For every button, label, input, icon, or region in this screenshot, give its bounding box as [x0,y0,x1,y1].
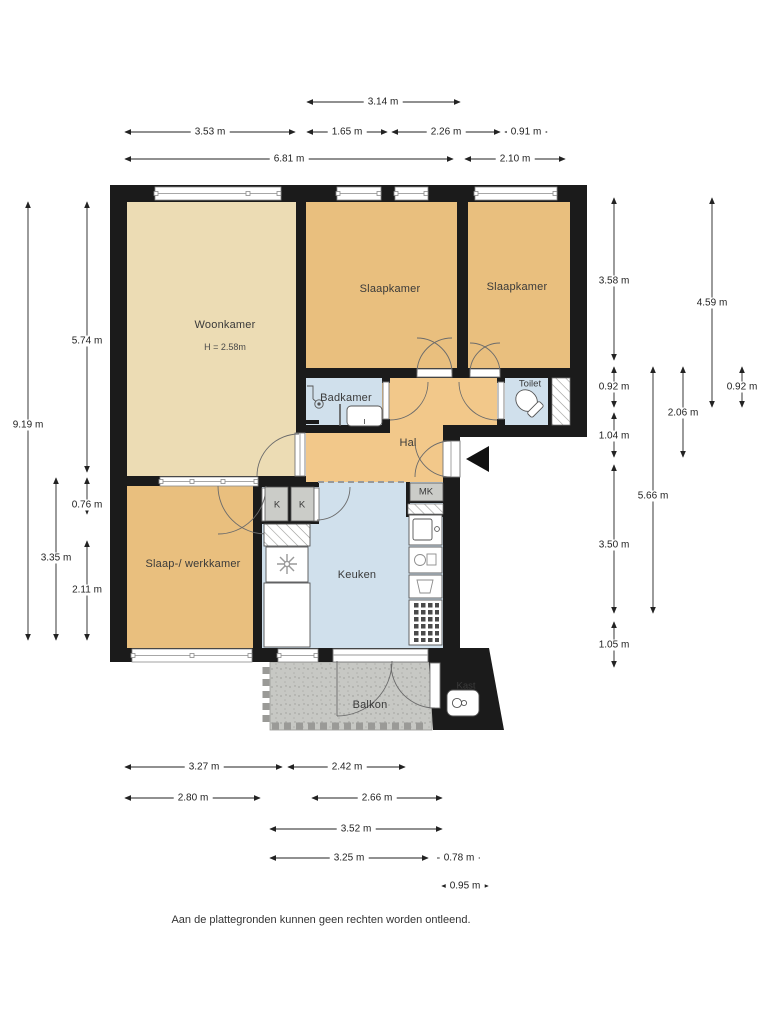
dim-left-211: 2.11 m [68,585,106,596]
dim-bottom-327: 3.27 m [185,762,224,773]
dim-right-566: 5.66 m [634,491,673,502]
dim-top-165: 1.65 m [328,127,367,138]
room-label-slaapkamer-top: Slaapkamer [360,283,421,295]
sink-basin-icon [413,519,432,540]
dim-right-350: 3.50 m [595,540,634,551]
window-slaapkamer-right [474,187,557,200]
dim-bottom-078: 0.78 m [440,853,479,864]
disclaimer-text: Aan de plattegronden kunnen geen rechten… [171,914,470,926]
dim-bottom-095: 0.95 m [446,881,485,892]
dim-right-092a: 0.92 m [595,382,634,393]
room-label-hal: Hal [399,437,416,449]
dim-bottom-352: 3.52 m [337,824,376,835]
boiler-icon [447,690,479,716]
dim-top-353: 3.53 m [191,127,230,138]
window-keuken-bottom [277,649,318,662]
toilet-shaft-hatch [552,378,570,425]
dim-right-092b: 0.92 m [723,382,762,393]
dim-left-574: 5.74 m [68,336,107,347]
room-label-keuken: Keuken [338,569,377,581]
mk-shaft-hatch [408,504,443,514]
dim-right-459: 4.59 m [693,298,732,309]
counter-hatch [264,524,310,546]
room-label-balkon: Balkon [353,699,388,711]
window-woonkamer-top [154,187,281,200]
dim-bottom-242: 2.42 m [328,762,367,773]
dim-left-076: 0.76 m [68,500,107,511]
counter-left [264,583,310,647]
dim-right-104: 1.04 m [595,431,634,442]
door-kast [430,663,440,708]
door-balkon [333,649,428,662]
room-hal-lower [306,425,455,486]
dim-bottom-325: 3.25 m [330,853,369,864]
floorplan-drawing [0,0,768,1024]
dim-top-226: 2.26 m [427,127,466,138]
wall-toilet-east [548,378,552,425]
wall-left [110,185,127,662]
dim-top-091: 0.91 m [507,127,546,138]
fan-icon [277,554,297,574]
wall-k-top [262,482,319,487]
wall-bedroom-divider [457,202,468,368]
dim-bottom-266: 2.66 m [358,793,397,804]
room-height-note: H = 2.58m [204,342,246,352]
door-toilet [498,382,504,419]
wall-badkamer-notch [306,420,319,424]
dim-left-335: 3.35 m [37,553,76,564]
room-label-kast: Kast [456,681,475,692]
room-label-k2: K [299,500,305,511]
room-label-woonkamer: Woonkamer [195,319,256,331]
wall-toilet-west-b [497,419,505,425]
door-slaapkamer-top [417,369,452,377]
dim-top-210: 2.10 m [496,154,535,165]
room-label-slaapkamer-right: Slaapkamer [487,281,548,293]
wall-under-toilet [443,425,587,437]
counter-appliance-2 [409,575,442,598]
door-slaapkamer-right [470,369,500,377]
entrance-arrow-icon [466,446,489,472]
room-label-mk: MK [419,487,433,498]
dim-right-358: 3.58 m [595,276,634,287]
wall-woonkamer-east [296,202,306,433]
dim-top-681: 6.81 m [270,154,309,165]
room-balkon [270,662,432,730]
floorplan-page: Woonkamer H = 2.58m Slaapkamer Slaapkame… [0,0,768,1024]
glass-partition-woonkamer [159,477,258,486]
dim-left-919: 9.19 m [9,420,48,431]
dim-bottom-280: 2.80 m [174,793,213,804]
window-slaapkamer-top-a [336,187,381,200]
dim-right-105: 1.05 m [595,640,634,651]
door-entry [443,441,460,477]
room-label-toilet: Toilet [519,379,541,390]
faucet-icon [435,527,440,532]
room-label-badkamer: Badkamer [320,392,372,404]
door-badkamer [383,382,389,419]
dim-top-314: 3.14 m [364,97,403,108]
wall-k-divider [288,487,291,522]
dim-right-206: 2.06 m [664,408,703,419]
room-label-k1: K [274,500,280,511]
wall-right [570,185,587,437]
room-label-slaap-werkkamer: Slaap-/ werkkamer [145,558,240,570]
window-werkkamer-bottom [131,649,252,662]
stove-burners-icon [412,603,439,642]
window-slaapkamer-top-b [394,187,428,200]
room-woonkamer [127,202,296,476]
wall-werkkamer-east [253,486,262,652]
